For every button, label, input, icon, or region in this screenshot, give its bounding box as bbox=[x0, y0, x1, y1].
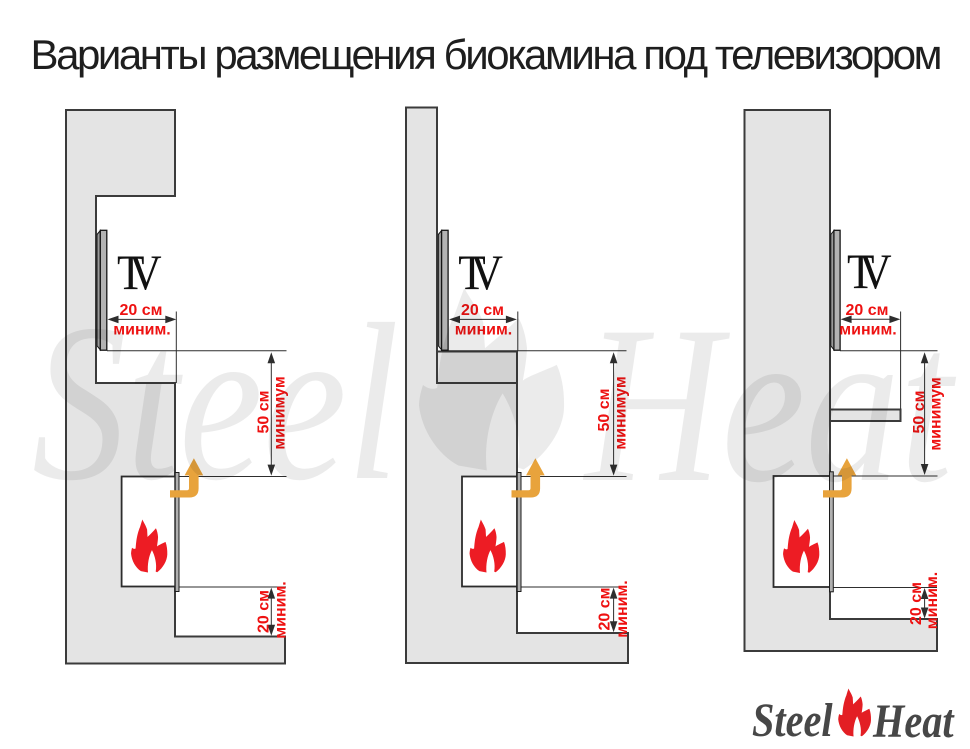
svg-text:20 см: 20 см bbox=[908, 582, 925, 625]
svg-text:20 см: 20 см bbox=[256, 590, 273, 633]
svg-text:Steel: Steel bbox=[32, 278, 399, 527]
svg-text:Варианты размещения биокамина: Варианты размещения биокамина под телеви… bbox=[31, 31, 943, 78]
svg-text:миним.: миним. bbox=[273, 581, 290, 638]
svg-text:Heat: Heat bbox=[872, 695, 955, 748]
svg-text:миним.: миним. bbox=[614, 580, 631, 637]
svg-text:Heat: Heat bbox=[582, 280, 956, 529]
svg-text:миним.: миним. bbox=[924, 572, 941, 629]
svg-text:Steel: Steel bbox=[752, 694, 833, 747]
svg-text:20 см: 20 см bbox=[597, 588, 614, 631]
